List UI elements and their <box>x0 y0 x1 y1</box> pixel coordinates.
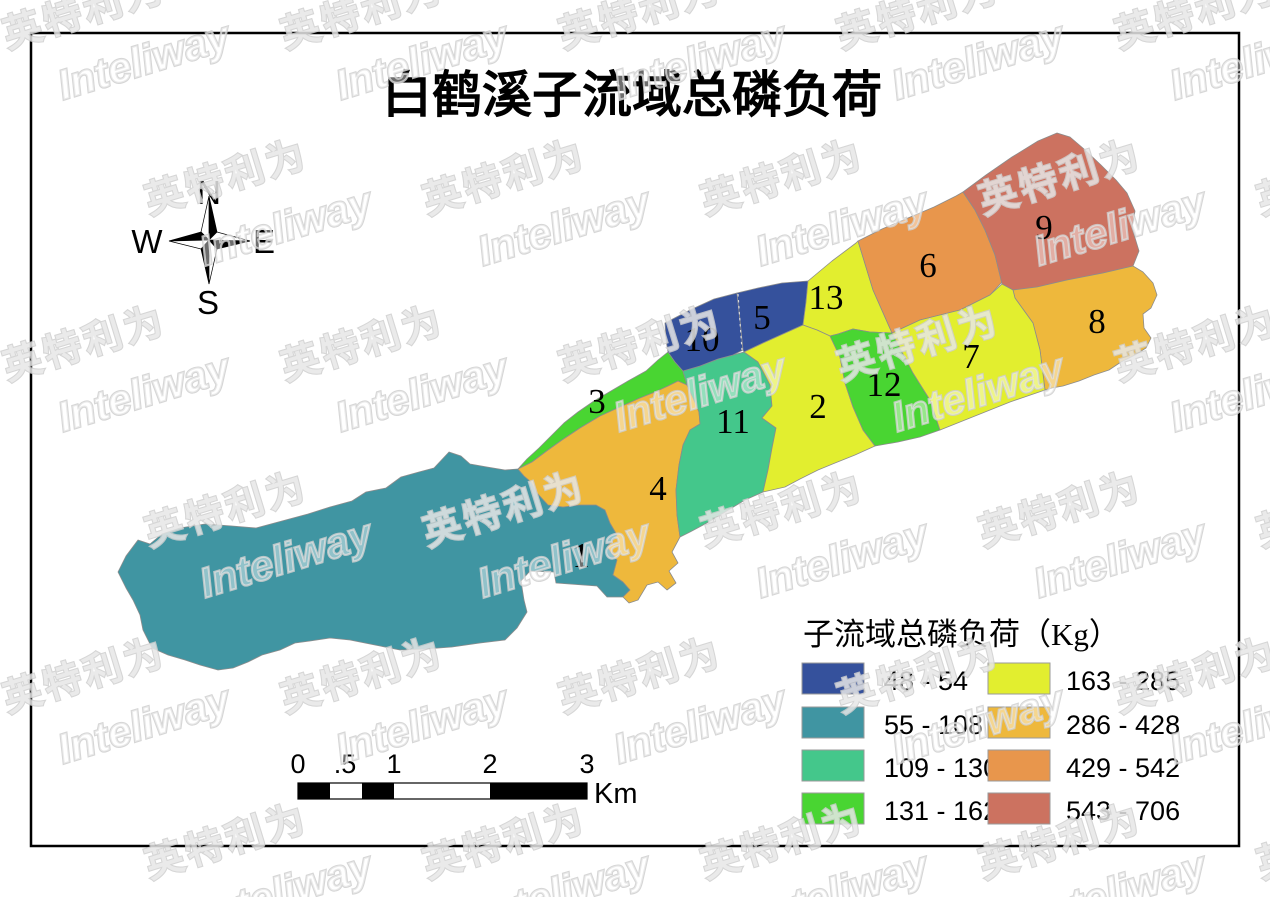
region-label-4: 4 <box>649 469 667 508</box>
scale-segment <box>490 783 587 799</box>
scale-tick-3: 3 <box>579 749 594 779</box>
map-canvas: 白鹤溪子流域总磷负荷 13411105132126987 N S W E 0 .… <box>0 0 1270 897</box>
watermark-cjk: 英特利为 <box>1252 133 1270 222</box>
legend-label-3: 131 - 162 <box>884 796 998 826</box>
legend-swatch-2 <box>802 750 864 781</box>
scale-tick-0: 0 <box>290 749 305 779</box>
region-label-3: 3 <box>588 382 606 421</box>
legend-label-6: 429 - 542 <box>1066 753 1180 783</box>
scale-segment <box>394 783 490 799</box>
region-label-8: 8 <box>1088 302 1106 341</box>
legend-swatch-6 <box>988 750 1050 781</box>
region-label-13: 13 <box>809 278 844 317</box>
scale-segment <box>330 783 362 799</box>
scale-segment <box>362 783 394 799</box>
scale-segment <box>298 783 330 799</box>
map-document: 白鹤溪子流域总磷负荷 13411105132126987 N S W E 0 .… <box>0 0 1270 897</box>
watermark-cjk: 英特利为 <box>1252 797 1270 886</box>
scale-unit-label: Km <box>594 778 638 810</box>
region-label-5: 5 <box>753 298 771 337</box>
scale-tick-2: 2 <box>482 749 497 779</box>
compass-south-label: S <box>197 284 219 321</box>
legend-swatch-7 <box>988 793 1050 824</box>
region-label-6: 6 <box>919 246 937 285</box>
compass-west-label: W <box>131 223 163 260</box>
watermark-cjk: 英特利为 <box>1252 465 1270 554</box>
region-label-2: 2 <box>809 387 827 426</box>
